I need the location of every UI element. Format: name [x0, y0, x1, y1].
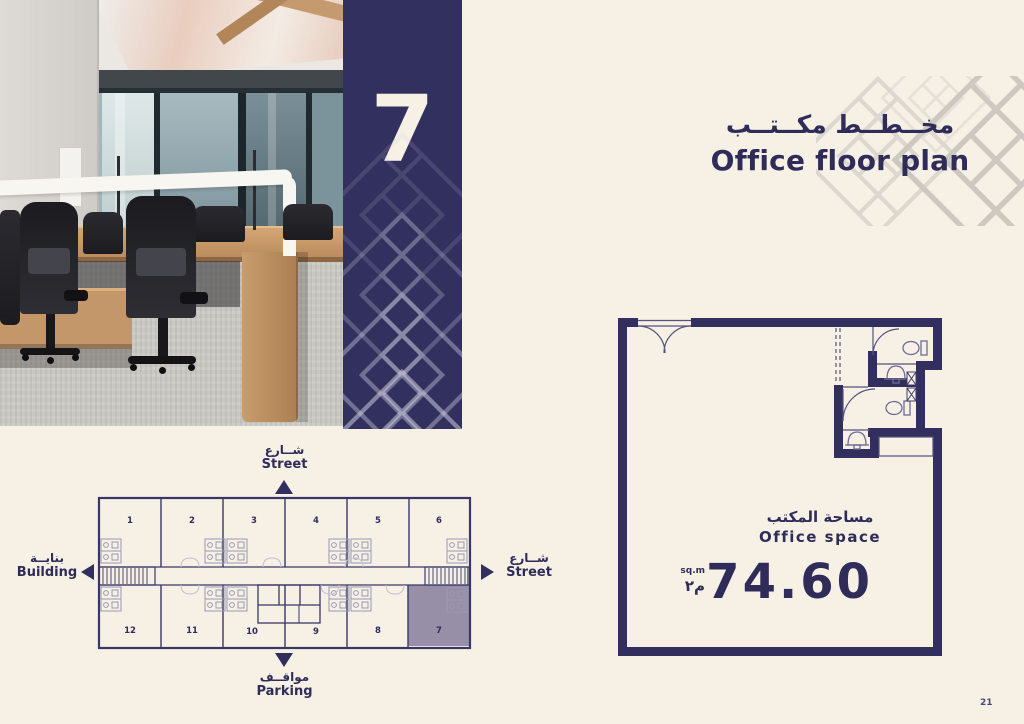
- street-label-right: شــارع Street: [497, 551, 561, 580]
- unit-number-4: 4: [313, 516, 319, 526]
- office-chair: [0, 210, 20, 325]
- office-photo: [0, 0, 345, 426]
- photo-glass-reflection: [268, 93, 276, 231]
- stairs-right: [425, 567, 468, 585]
- unit-number-11: 11: [186, 626, 198, 636]
- unit-number-7: 7: [436, 626, 442, 636]
- street-arrow-up-icon: [275, 480, 293, 494]
- unit-number-10: 10: [246, 627, 258, 637]
- dashed-partition-line: [836, 328, 840, 383]
- parking-label-arabic: مواقــف: [224, 670, 345, 684]
- building-arrow-left-icon: [81, 564, 94, 580]
- unit-number-1: 1: [127, 516, 133, 526]
- area-unit-arabic: م٢: [685, 577, 705, 595]
- area-label-arabic: مساحة المكتب: [767, 508, 874, 526]
- page-number: 21: [980, 698, 993, 708]
- entrance-double-door: [638, 321, 691, 354]
- building-label-english: Building: [15, 565, 79, 580]
- parking-label-bottom: مواقــف Parking: [224, 670, 345, 699]
- area-unit-english: sq.m: [680, 566, 705, 576]
- street-arrow-right-icon: [481, 564, 494, 580]
- unit-number-8: 8: [375, 626, 381, 636]
- highlighted-unit-7: [408, 585, 470, 646]
- photo-table-leg-panel: [242, 252, 298, 422]
- photo-table-leg-shadow: [296, 252, 308, 422]
- office-chair: [126, 196, 210, 376]
- street-label-top-english: Street: [224, 457, 345, 472]
- street-label-top: شــارع Street: [224, 443, 345, 472]
- parking-label-english: Parking: [224, 684, 345, 699]
- sink-icon: [845, 432, 869, 449]
- building-label-left: بنايــة Building: [15, 551, 79, 580]
- toilet-icon: [903, 341, 927, 355]
- area-value: 74.60: [706, 554, 873, 610]
- page-title-english: Office floor plan: [700, 144, 980, 177]
- stairs-left: [99, 567, 155, 585]
- street-label-right-arabic: شــارع: [497, 551, 561, 565]
- unit-number-9: 9: [313, 627, 319, 637]
- street-label-top-arabic: شــارع: [224, 443, 345, 457]
- building-label-arabic: بنايــة: [15, 551, 79, 565]
- door-arc: [843, 389, 875, 421]
- unit-number-2: 2: [189, 516, 195, 526]
- page-title-arabic: مخــطــط مكــتــب: [700, 110, 980, 139]
- unit-number-3: 3: [251, 516, 257, 526]
- banner-geometric-pattern: [343, 0, 462, 429]
- brochure-page: 7 مخــطــط مكــتــب Office floor plan: [0, 0, 1024, 724]
- parking-arrow-down-icon: [275, 653, 293, 667]
- street-label-right-english: Street: [497, 565, 561, 580]
- service-core: [258, 585, 320, 623]
- photo-lamp-pole: [253, 150, 256, 230]
- building-key-plan: 1 2 3 4 5 6 12 11 10 9 8 7: [95, 493, 475, 653]
- area-label-english: Office space: [759, 528, 881, 546]
- unit-numbers: 1 2 3 4 5 6 12 11 10 9 8 7: [124, 516, 442, 637]
- page-title: مخــطــط مكــتــب Office floor plan: [700, 110, 980, 177]
- toilet-icon: [886, 401, 910, 415]
- office-chair: [20, 202, 90, 367]
- unit-banner: 7: [343, 0, 462, 429]
- office-floor-plan-drawing: مساحة المكتب Office space sq.m م٢ 74.60: [615, 315, 945, 657]
- unit-number-6: 6: [436, 516, 442, 526]
- unit-number-12: 12: [124, 626, 136, 636]
- office-chair: [283, 204, 333, 240]
- unit-number-5: 5: [375, 516, 381, 526]
